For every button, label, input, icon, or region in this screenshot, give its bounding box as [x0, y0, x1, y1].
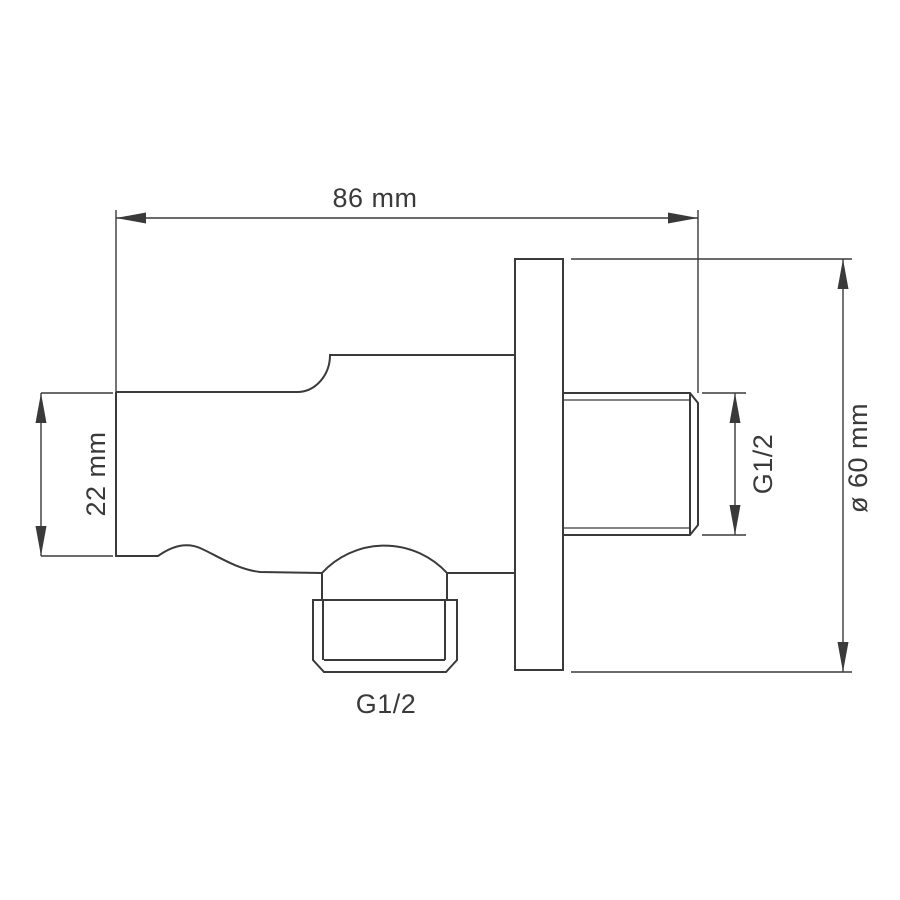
arrowhead-up-icon	[36, 393, 47, 423]
dimension-wall-thread-size: G1/2	[702, 393, 778, 535]
hose-nut-outline	[313, 600, 457, 672]
dimension-overall-depth-label: 86 mm	[332, 183, 417, 213]
arrowhead-up-icon	[730, 393, 741, 423]
arrowhead-down-icon	[730, 505, 741, 535]
outlet-neck	[322, 573, 447, 600]
dimension-flange-diameter-label: ø 60 mm	[843, 403, 873, 513]
dimension-bracket-height-label: 22 mm	[81, 431, 111, 516]
body-bottom-profile	[116, 392, 322, 573]
arrowhead-down-icon	[838, 642, 849, 672]
wall-plate	[515, 259, 563, 670]
dimension-overall-depth: 86 mm	[116, 183, 698, 393]
dimension-flange-diameter-lines	[571, 259, 852, 672]
wall-thread-outline	[563, 393, 698, 535]
arrowhead-down-icon	[36, 526, 47, 556]
dimension-wall-thread-label: G1/2	[748, 434, 778, 495]
label-hose-thread-text: G1/2	[356, 689, 417, 719]
technical-drawing: 86 mm 22 mm G1/2 ø 60 mm G1/2	[0, 0, 900, 900]
part-geometry	[116, 259, 698, 672]
dimension-wall-thread-lines	[702, 393, 746, 535]
hose-nut-facets	[323, 600, 445, 660]
dimension-bracket-height: 22 mm	[36, 393, 114, 556]
body-top-profile	[116, 355, 515, 392]
outlet-dome	[322, 546, 515, 573]
drawing-canvas: 86 mm 22 mm G1/2 ø 60 mm G1/2	[0, 0, 900, 900]
arrowhead-right-icon	[668, 213, 698, 224]
label-hose-thread-size: G1/2	[356, 689, 417, 719]
arrowhead-up-icon	[838, 259, 849, 289]
wall-thread-root-lines	[563, 400, 690, 528]
dimension-overall-depth-lines	[116, 210, 698, 393]
arrowhead-left-icon	[116, 213, 146, 224]
dimension-flange-diameter: ø 60 mm	[571, 259, 873, 672]
